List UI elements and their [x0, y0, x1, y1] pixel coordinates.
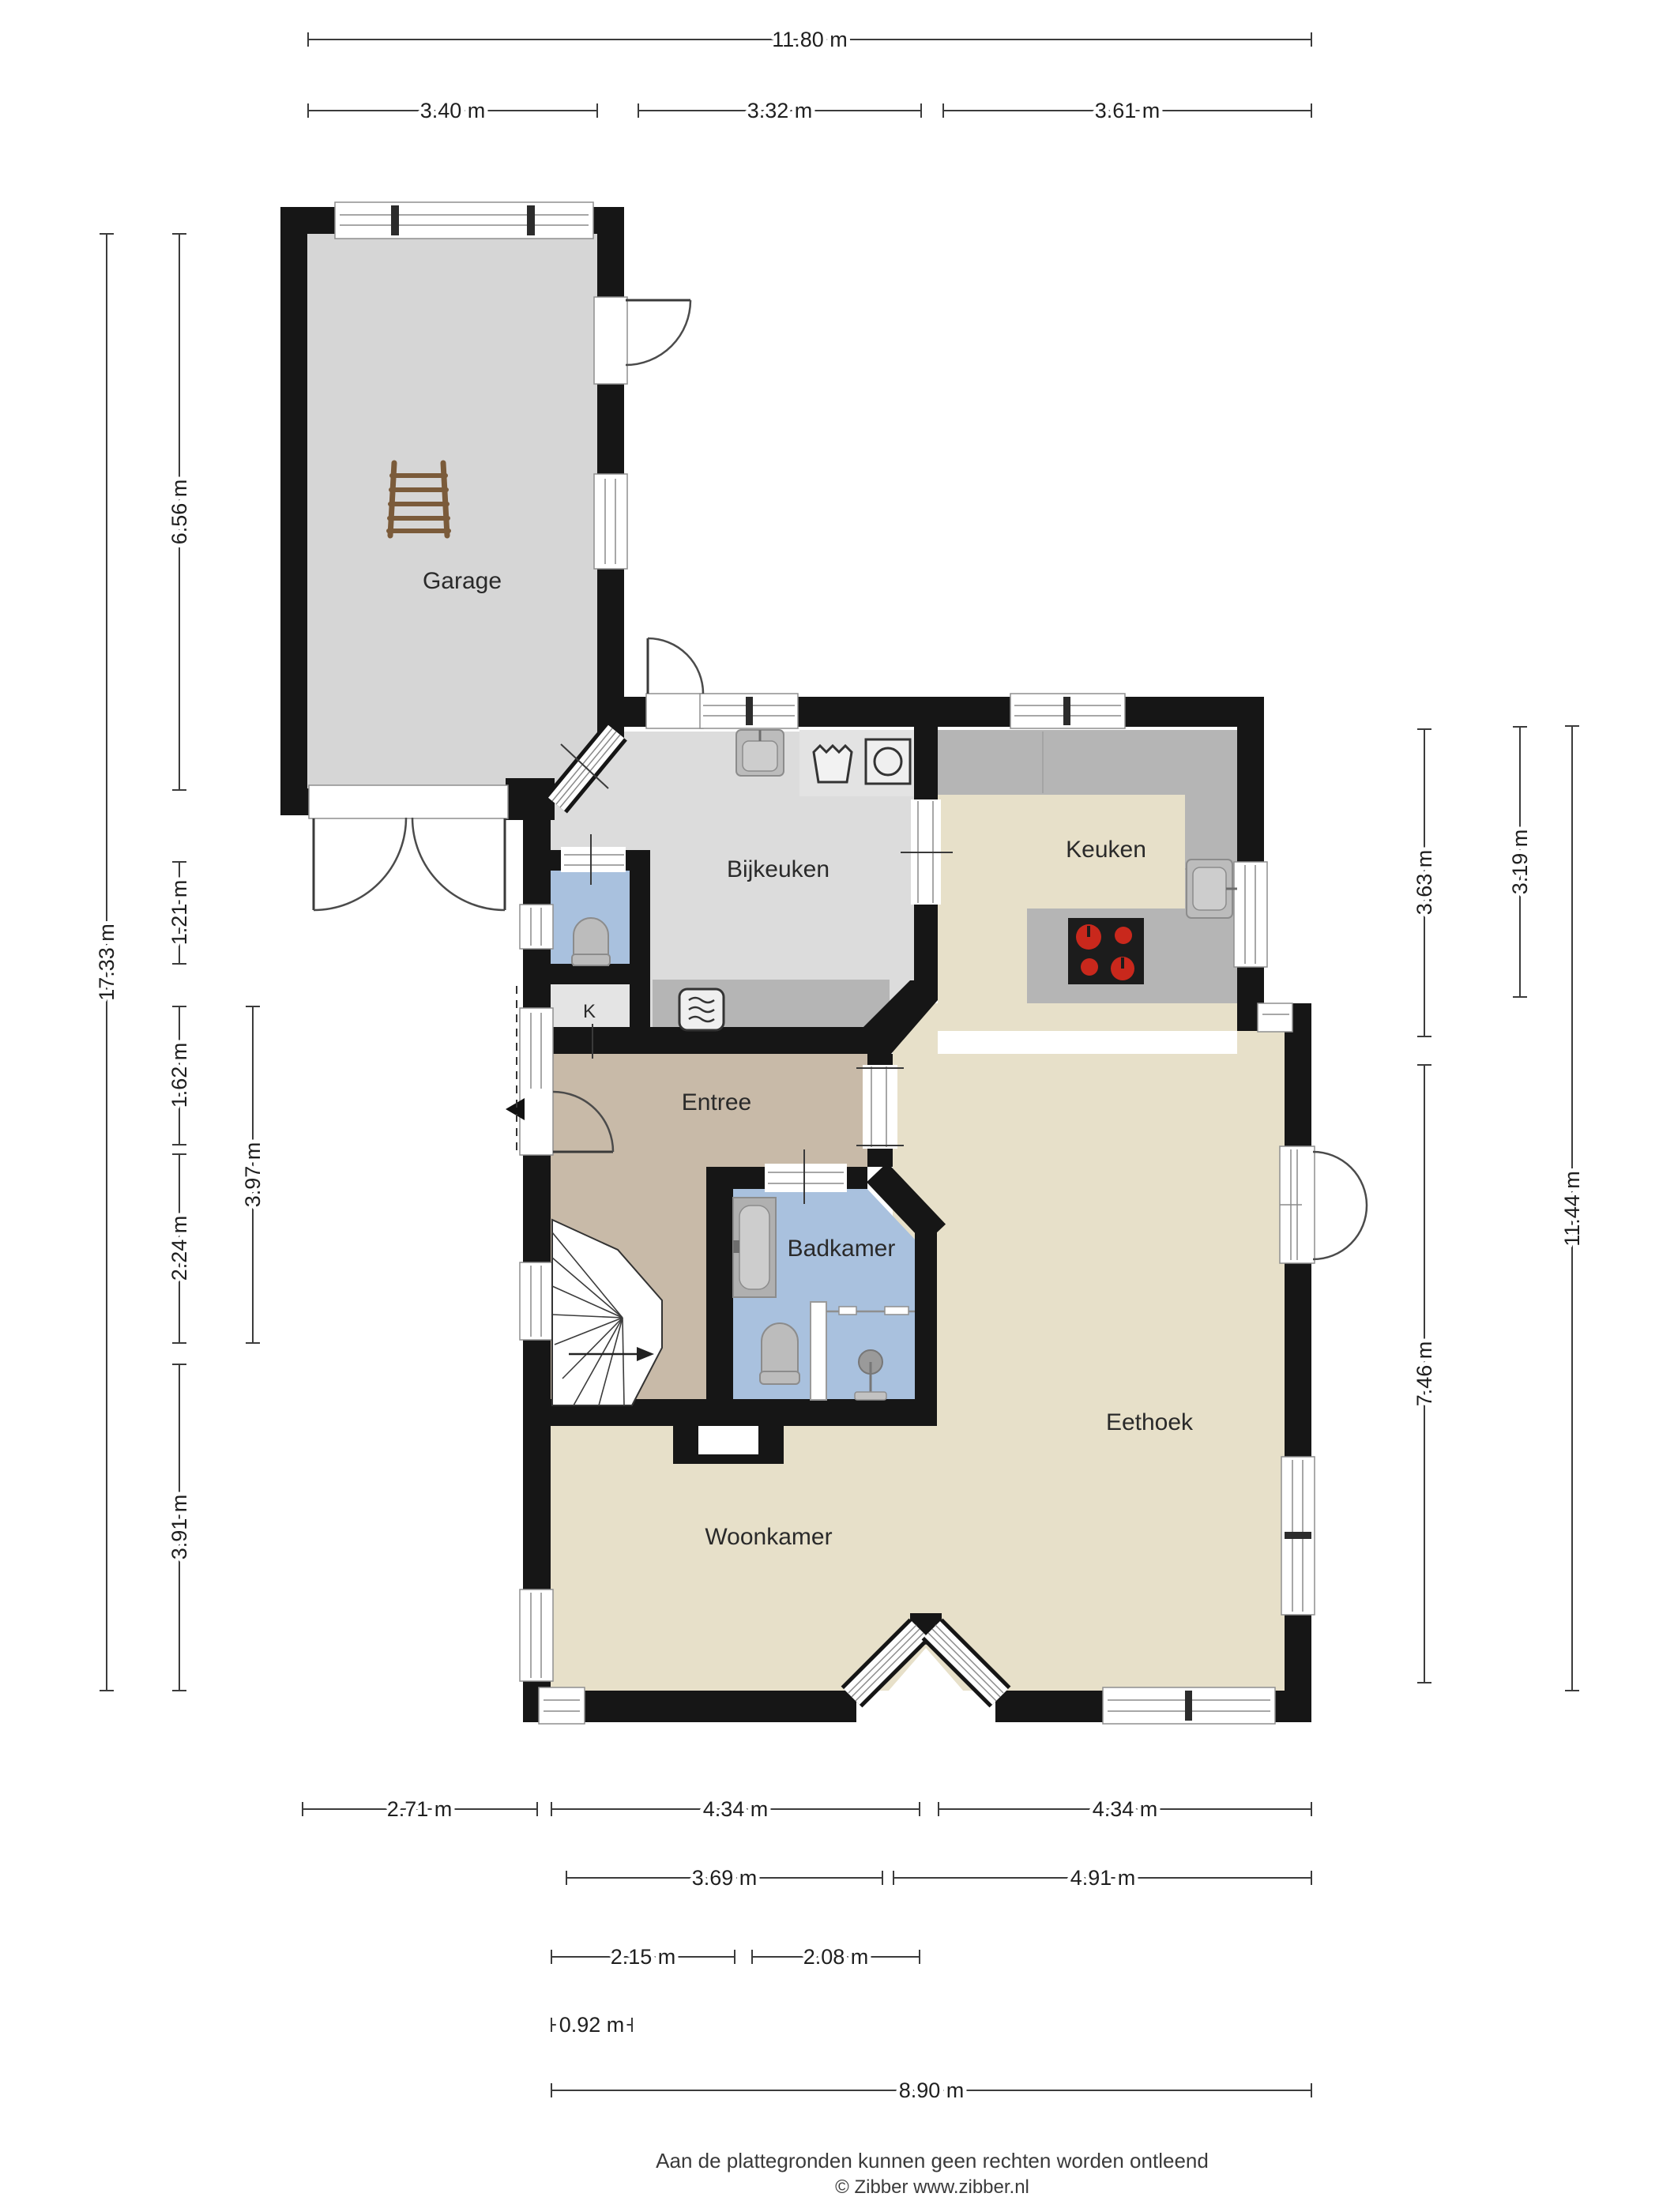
svg-text:11.44 m: 11.44 m — [1560, 1171, 1584, 1247]
svg-text:3.97 m: 3.97 m — [241, 1142, 265, 1208]
dim-bottom-9: 8.90 m — [551, 2078, 1311, 2102]
dim-bottom-6: 2.15 m — [551, 1945, 735, 1969]
copyright-text: © Zibber www.zibber.nl — [835, 2176, 1029, 2198]
svg-text:3.19 m: 3.19 m — [1508, 829, 1532, 895]
eethoek-label: Eethoek — [1106, 1409, 1194, 1435]
garage-floor — [307, 234, 597, 788]
svg-text:3.69 m: 3.69 m — [692, 1866, 758, 1890]
keuken-right-window — [1234, 862, 1267, 967]
svg-text:2.71 m: 2.71 m — [387, 1797, 453, 1821]
dim-right-3: 11.44 m — [1560, 726, 1584, 1691]
dim-left-total: 17.33 m — [95, 234, 118, 1691]
dim-left-1: 6.56 m — [167, 234, 191, 790]
svg-text:3.91 m: 3.91 m — [167, 1495, 191, 1560]
svg-text:2.15 m: 2.15 m — [611, 1945, 676, 1969]
wc-door-opening — [561, 847, 626, 872]
svg-text:1.21 m: 1.21 m — [167, 880, 191, 946]
svg-text:2.24 m: 2.24 m — [167, 1216, 191, 1281]
svg-text:17.33 m: 17.33 m — [95, 924, 118, 1001]
badkamer-label: Badkamer — [788, 1236, 896, 1262]
dim-top-total: 11.80 m — [308, 28, 1311, 51]
eethoek-floor — [893, 1054, 1285, 1426]
svg-text:4.34 m: 4.34 m — [703, 1797, 769, 1821]
svg-text:8.90 m: 8.90 m — [899, 2078, 965, 2102]
corner-window — [539, 1687, 585, 1724]
dim-bottom-3: 4.34 m — [939, 1797, 1311, 1821]
toilet-icon — [572, 918, 610, 965]
badkamer-door-opening — [765, 1164, 847, 1192]
woonkamer-left-window — [520, 1589, 553, 1681]
stair-window — [520, 1262, 553, 1340]
dim-bottom-2: 4.34 m — [551, 1797, 920, 1821]
woonkamer-label: Woonkamer — [705, 1524, 832, 1550]
bathtub-icon — [733, 1198, 776, 1297]
dim-left-5: 3.97 m — [241, 1006, 265, 1343]
disclaimer-text: Aan de plattegronden kunnen geen rechten… — [656, 2149, 1209, 2172]
bath-toilet-icon — [760, 1323, 799, 1384]
dim-left-4: 2.24 m — [167, 1154, 191, 1343]
svg-text:11.80 m: 11.80 m — [772, 28, 848, 51]
dim-top-2: 3.32 m — [638, 99, 921, 122]
svg-text:7.46 m: 7.46 m — [1413, 1341, 1436, 1407]
svg-text:4.34 m: 4.34 m — [1093, 1797, 1158, 1821]
entrance-arrow-icon — [506, 1098, 525, 1120]
dim-bottom-8: 0.92 m — [551, 2013, 632, 2037]
kitchen-top-counter — [938, 730, 1237, 795]
floor-plan-canvas: Garage Bijkeuken Keuken Entree Badkamer … — [0, 0, 1659, 2212]
front-door-opening — [520, 1008, 553, 1155]
dim-left-2: 1.21 m — [167, 862, 191, 964]
floor-plan-page: Garage Bijkeuken Keuken Entree Badkamer … — [0, 0, 1659, 2212]
laundry-basket-icon — [814, 746, 852, 782]
svg-text:0.92 m: 0.92 m — [559, 2013, 625, 2037]
dim-bottom-5: 4.91 m — [893, 1866, 1311, 1890]
garage-right-window — [594, 474, 627, 569]
svg-text:3.40 m: 3.40 m — [420, 99, 486, 122]
jog-window — [1258, 1003, 1292, 1032]
dim-right-1: 3.63 m — [1413, 729, 1436, 1036]
sink-icon — [736, 730, 784, 776]
dim-top-3: 3.61 m — [943, 99, 1311, 122]
dim-top-1: 3.40 m — [308, 99, 597, 122]
keuken-label: Keuken — [1066, 837, 1146, 863]
garage-label: Garage — [423, 568, 502, 594]
garage-side-door-opening — [594, 297, 627, 384]
cooktop-icon — [1068, 918, 1144, 984]
entree-eethoek-opening — [863, 1065, 897, 1149]
bijkeuken-label: Bijkeuken — [727, 856, 829, 882]
dim-bottom-7: 2.08 m — [752, 1945, 920, 1969]
dim-right-4: 7.46 m — [1413, 1065, 1436, 1683]
kitchen-sink-icon — [1187, 860, 1237, 918]
dim-bottom-1: 2.71 m — [303, 1797, 537, 1821]
garage-double-door-opening — [309, 785, 508, 818]
svg-text:3.61 m: 3.61 m — [1095, 99, 1161, 122]
microwave-icon — [679, 989, 724, 1030]
svg-text:4.91 m: 4.91 m — [1070, 1866, 1136, 1890]
svg-text:6.56 m: 6.56 m — [167, 480, 191, 545]
svg-text:3.63 m: 3.63 m — [1413, 850, 1436, 916]
dim-right-2: 3.19 m — [1508, 727, 1532, 997]
closet-label: K — [583, 1001, 596, 1022]
svg-text:3.32 m: 3.32 m — [747, 99, 813, 122]
dim-left-3: 1.62 m — [167, 1006, 191, 1145]
entree-label: Entree — [682, 1089, 751, 1115]
dim-left-6: 3.91 m — [167, 1364, 191, 1691]
bijkeuken-door-opening — [646, 694, 703, 728]
wc-window — [520, 905, 553, 949]
dim-bottom-4: 3.69 m — [566, 1866, 882, 1890]
svg-text:2.08 m: 2.08 m — [803, 1945, 869, 1969]
garage-top-window — [335, 202, 593, 239]
svg-text:1.62 m: 1.62 m — [167, 1043, 191, 1108]
washing-machine-icon — [866, 739, 910, 784]
